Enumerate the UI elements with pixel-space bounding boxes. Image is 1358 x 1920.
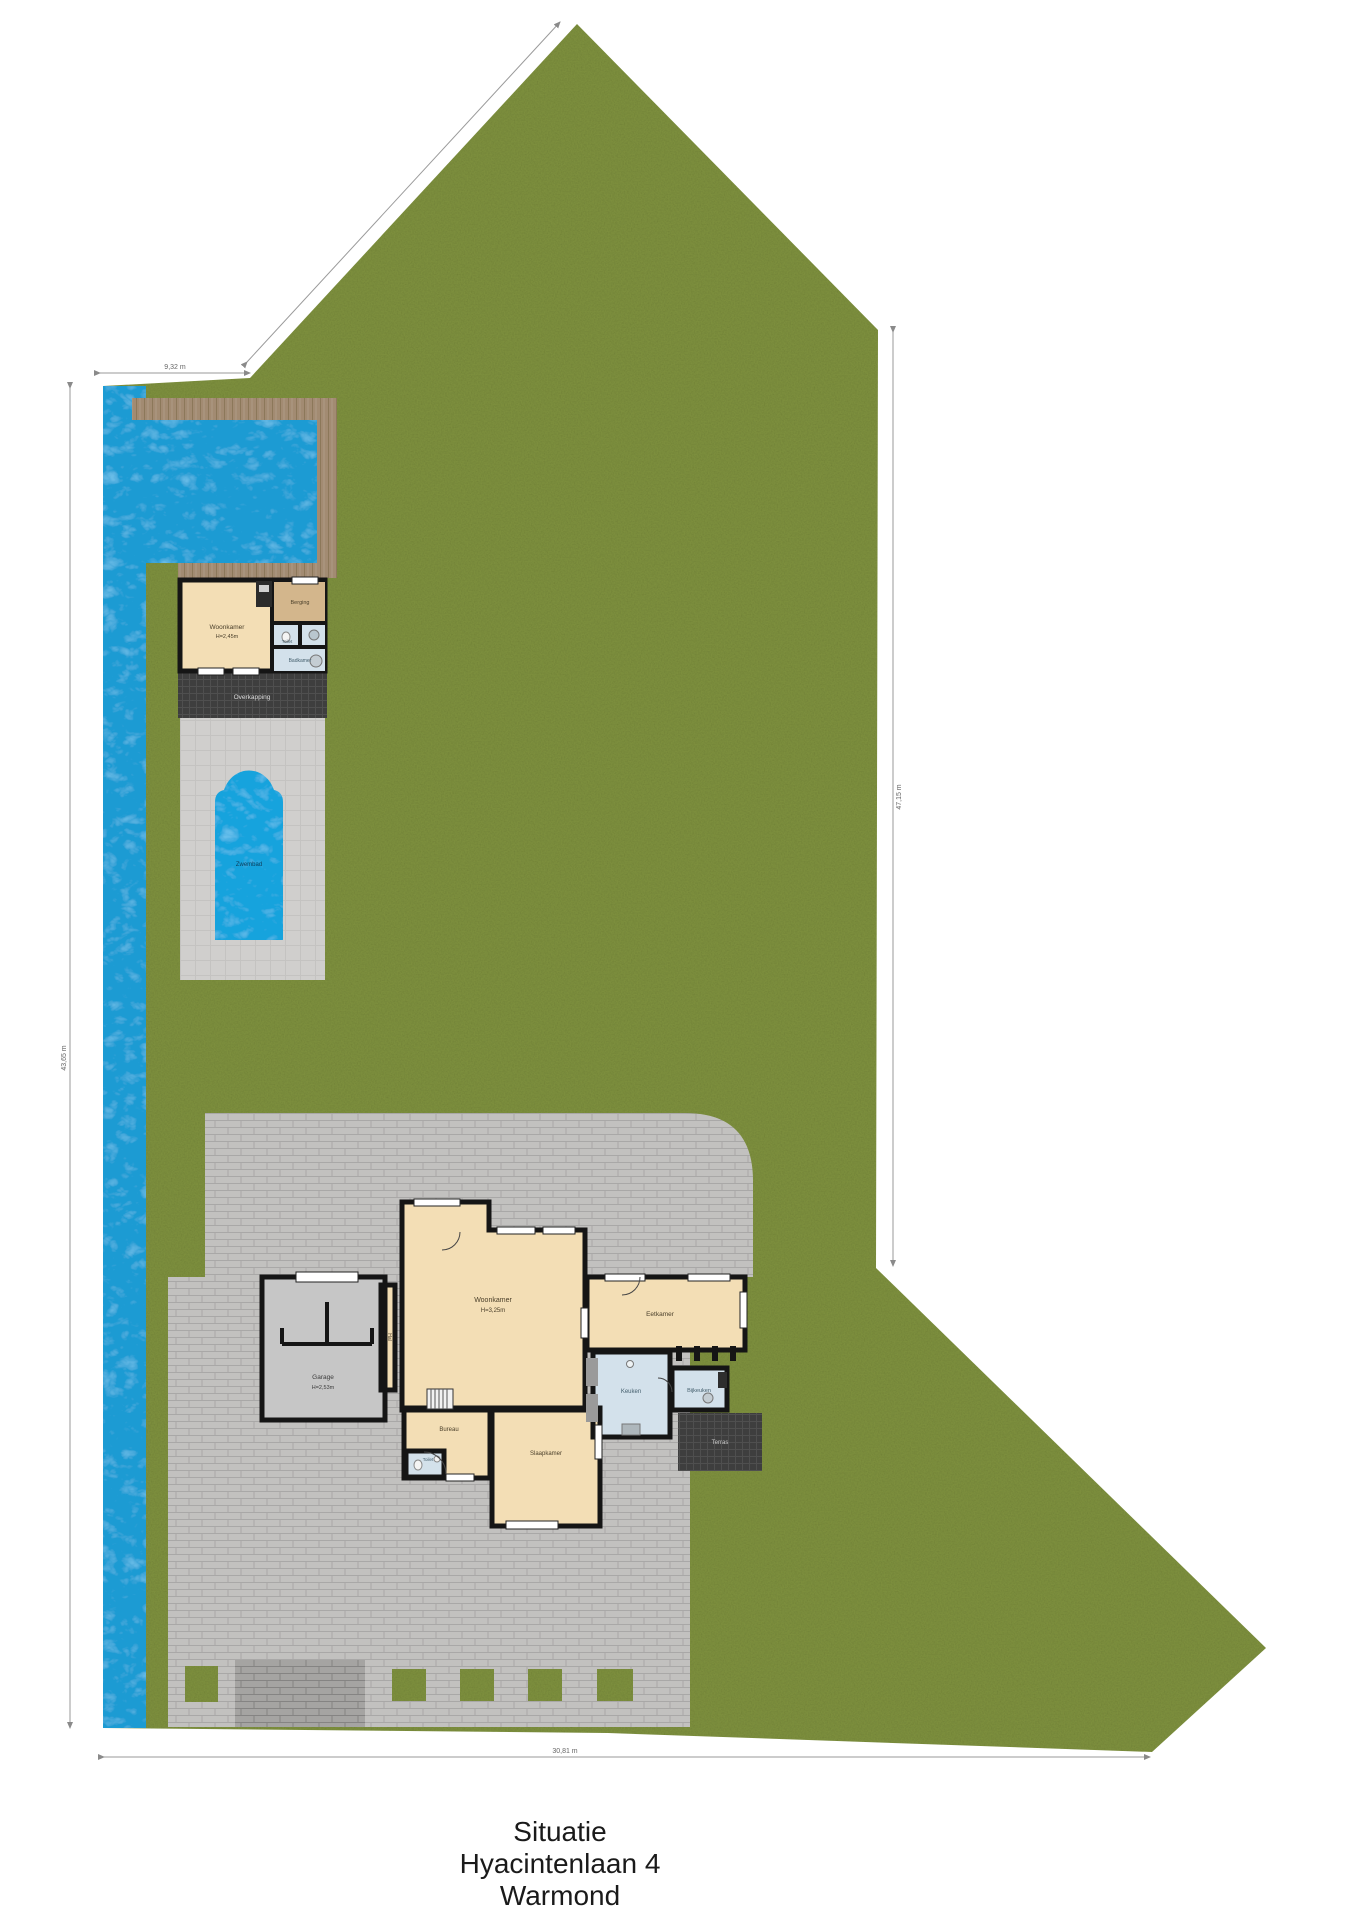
poolhouse-living-sub: H=2,45m xyxy=(216,634,239,640)
poolhouse-canopy-label: Overkapping xyxy=(234,694,271,701)
kitchen-label: Keuken xyxy=(621,1389,641,1395)
stairs xyxy=(427,1389,453,1409)
planter xyxy=(392,1669,426,1701)
poolhouse-storage-label: Berging xyxy=(291,600,310,606)
planter xyxy=(460,1669,494,1701)
living-label: Woonkamer xyxy=(474,1297,512,1304)
poolhouse-kitchenette xyxy=(256,581,272,607)
planter xyxy=(185,1666,218,1702)
dim-right-label: 47,15 m xyxy=(896,784,903,809)
kitchen-island xyxy=(622,1424,640,1435)
garage-label: Garage xyxy=(312,1374,334,1381)
site-plan: Zwembad Overkapping Woonkamer H=2,45m Be… xyxy=(0,0,1358,1920)
title-line-3: Warmond xyxy=(500,1880,620,1911)
water-basin xyxy=(103,398,317,563)
utility-appliance xyxy=(718,1372,727,1388)
living-room xyxy=(404,1204,583,1408)
entrance-apron xyxy=(235,1660,365,1727)
kitchen-counter xyxy=(586,1358,598,1386)
garage-door xyxy=(296,1272,358,1282)
pool-label: Zwembad xyxy=(236,862,262,868)
deck-top-band xyxy=(132,398,337,420)
terrace-label: Terras xyxy=(712,1440,729,1446)
toilet-fixture xyxy=(414,1460,422,1470)
toilet-label: Toilet xyxy=(423,1457,434,1462)
title-line-2: Hyacintenlaan 4 xyxy=(460,1848,661,1879)
title-block: Situatie Hyacintenlaan 4 Warmond xyxy=(460,1816,661,1911)
dim-left-label: 43,65 m xyxy=(61,1045,68,1070)
dim-bottom-label: 30,81 m xyxy=(552,1748,577,1755)
utility-label: Bijkeuken xyxy=(687,1388,711,1394)
shower-drain xyxy=(309,630,319,640)
poolhouse-sink xyxy=(259,585,269,592)
hall-label: Hal xyxy=(386,1333,392,1341)
site-plan-page: Zwembad Overkapping Woonkamer H=2,45m Be… xyxy=(0,0,1358,1920)
kitchen-sink xyxy=(627,1361,634,1368)
poolhouse-bath-label: Badkamer xyxy=(289,658,312,664)
poolhouse-living-label: Woonkamer xyxy=(210,624,246,631)
water-strip xyxy=(103,386,146,1728)
garage-sub: H=2,53m xyxy=(312,1385,335,1391)
deck-bottom-band xyxy=(178,563,317,578)
garage-room xyxy=(264,1279,383,1418)
bedroom-label: Slaapkamer xyxy=(530,1451,562,1457)
utility-washer xyxy=(703,1393,713,1403)
deck-right-band xyxy=(317,420,337,578)
dining-label: Eetkamer xyxy=(646,1311,675,1318)
office-label: Bureau xyxy=(439,1427,458,1433)
title-line-1: Situatie xyxy=(513,1816,606,1847)
dim-top-label: 9,32 m xyxy=(164,364,186,371)
toilet-sink xyxy=(434,1456,440,1462)
washer-fixture xyxy=(310,655,322,667)
poolhouse-toilet-label: Toilet xyxy=(282,639,293,644)
planter xyxy=(528,1669,562,1701)
living-sub: H=3,25m xyxy=(481,1308,506,1314)
poolhouse: Overkapping Woonkamer H=2,45m Berging To… xyxy=(178,577,327,718)
planter xyxy=(597,1669,633,1701)
bedroom-room xyxy=(494,1410,598,1524)
swimming-pool-water xyxy=(215,771,283,941)
kitchen-counter xyxy=(586,1394,598,1422)
